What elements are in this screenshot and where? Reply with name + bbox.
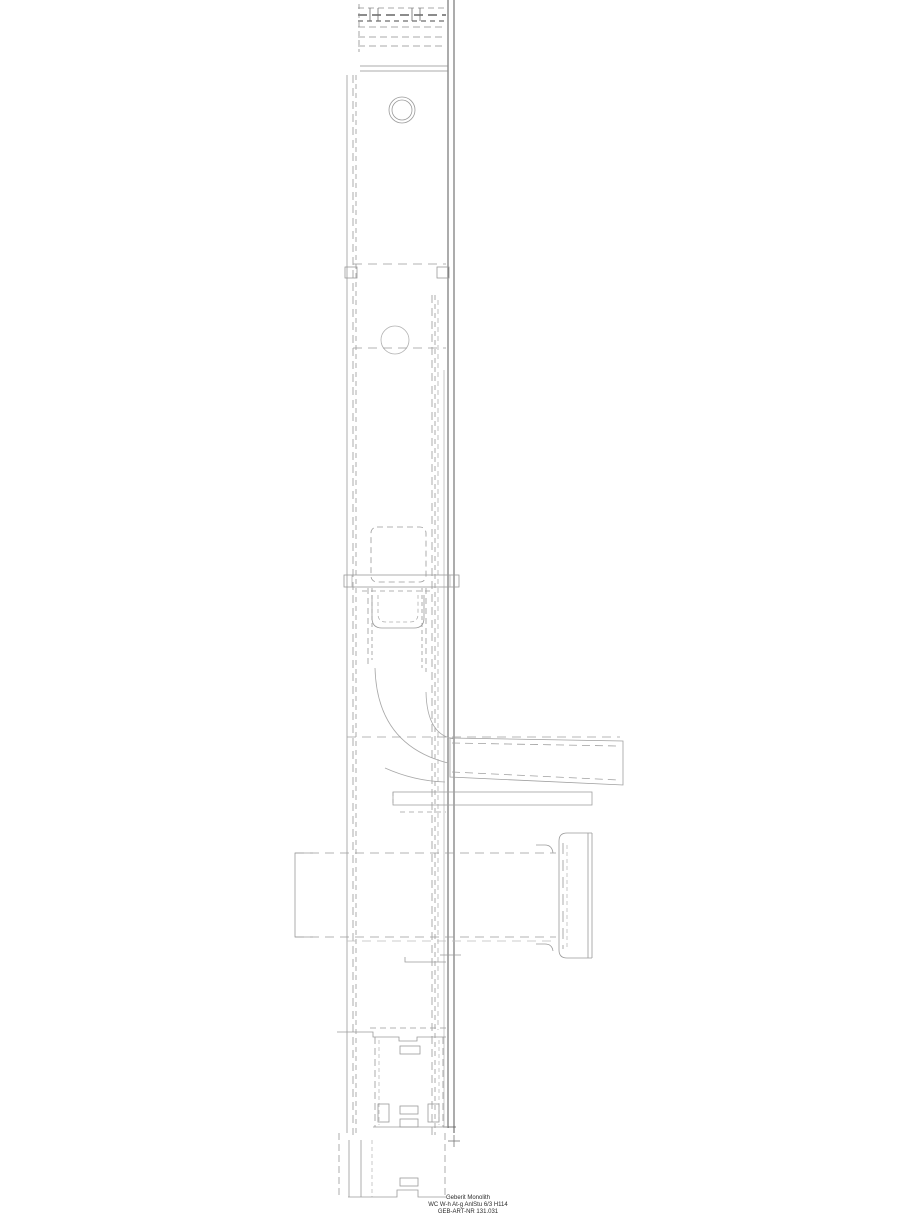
drain-pipe	[295, 833, 592, 962]
title-block: Geberit Monolith WC W-h At-g AnlStu 6/3 …	[403, 1195, 533, 1217]
base-fixing-section	[339, 1133, 446, 1197]
cad-sheet: Geberit Monolith WC W-h At-g AnlStu 6/3 …	[0, 0, 920, 1226]
datum-cross-icon	[448, 1135, 460, 1147]
lower-bracket-assembly	[337, 1028, 448, 1127]
drawing-subtitle: WC W-h At-g AnlStu 6/3 H114	[403, 1202, 533, 1209]
top-mounting-section	[358, 4, 448, 71]
technical-drawing	[0, 0, 920, 1226]
module-body-outline	[347, 75, 444, 1135]
cistern-internals	[345, 97, 449, 354]
wall-section-lines	[443, 0, 456, 1133]
drawing-article-number: GEB-ART-NR 131.031	[403, 1209, 533, 1216]
flush-pipe-elbow	[375, 668, 455, 782]
wc-pan-profile	[347, 737, 623, 812]
drawing-title: Geberit Monolith	[403, 1195, 533, 1202]
flush-valve-assembly	[344, 527, 459, 672]
